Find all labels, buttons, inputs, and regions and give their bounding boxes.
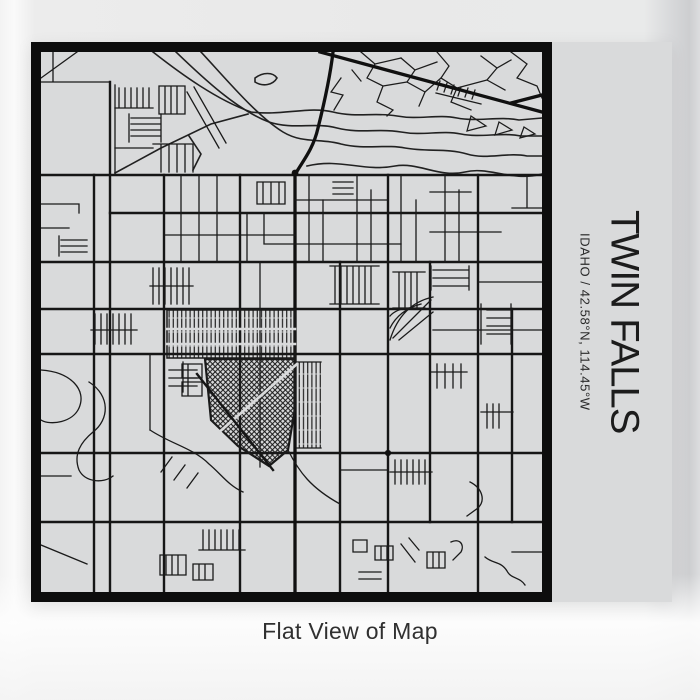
view-caption: Flat View of Map <box>0 618 700 645</box>
print-side-panel: TWIN FALLS IDAHO / 42.58°N, 114.45°W <box>552 42 672 602</box>
map-frame <box>31 42 552 602</box>
city-street-map <box>41 52 542 592</box>
map-print: TWIN FALLS IDAHO / 42.58°N, 114.45°W <box>31 42 672 602</box>
city-title: TWIN FALLS <box>602 210 647 433</box>
city-subtitle: IDAHO / 42.58°N, 114.45°W <box>578 233 593 411</box>
print-title-block: TWIN FALLS IDAHO / 42.58°N, 114.45°W <box>578 210 647 433</box>
downtown-blocks <box>167 310 321 470</box>
